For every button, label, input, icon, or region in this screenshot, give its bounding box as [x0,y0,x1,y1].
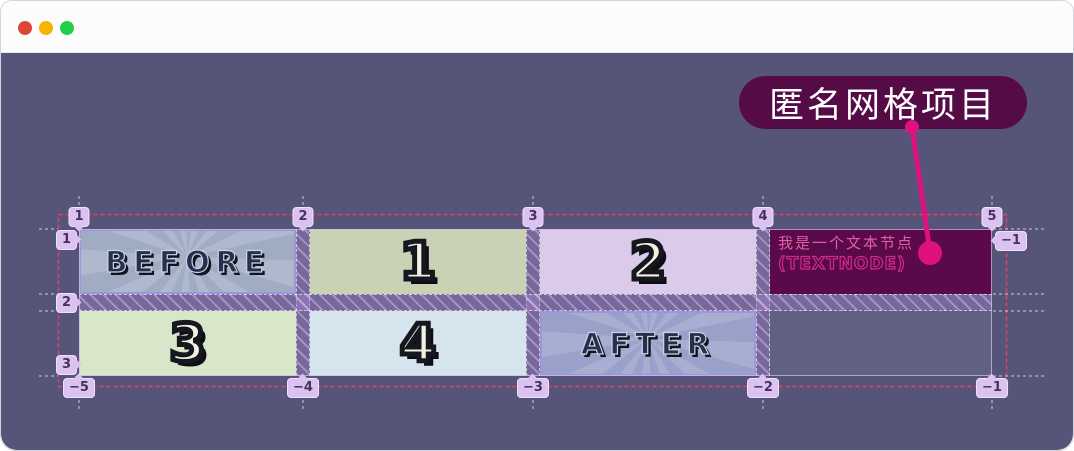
grid-cell-3: 3 [79,311,296,376]
grid-cell-2: 2 [540,229,756,294]
grid-line-marker-left-2: 2 [56,293,77,313]
grid-line-marker-bottom-neg4: −4 [287,378,319,398]
close-button[interactable] [18,21,32,35]
grid-cell-before: BEFORE [79,229,296,294]
browser-window: BEFORE 1 2 我是一个文本节点 (TEXTNODE) 3 4 AFTER… [0,0,1074,451]
grid-line-marker-top-4: 4 [752,207,773,227]
grid-line-marker-bottom-neg5: −5 [63,378,95,398]
textnode-line2: (TEXTNODE) [778,254,906,274]
grid-line-marker-bottom-neg1: −1 [976,378,1008,398]
grid-line-marker-bottom-neg2: −2 [747,378,779,398]
annotation-bubble: 匿名网格项目 [739,76,1027,129]
grid-line-marker-top-5: 5 [981,207,1002,227]
minimize-button[interactable] [39,21,53,35]
grid-cell-4: 4 [310,311,526,376]
grid-line-marker-left-3: 3 [56,355,77,375]
cell-4-label: 4 [400,314,436,374]
cell-1-label: 1 [400,232,436,292]
cell-2-label: 2 [630,232,666,292]
window-titlebar [1,1,1073,53]
grid-line-marker-top-1: 1 [68,207,89,227]
cell-3-label: 3 [169,314,205,374]
zoom-button[interactable] [60,21,74,35]
grid-cell-anonymous-textnode: 我是一个文本节点 (TEXTNODE) [770,229,992,294]
annotation-label: 匿名网格项目 [769,77,997,128]
grid-line-marker-left-1: 1 [56,230,77,250]
grid-cell-after: AFTER [540,311,756,376]
grid-line-marker-right-neg1: −1 [995,231,1027,251]
grid-cell-empty [770,311,992,376]
grid-line-marker-bottom-neg3: −3 [517,378,549,398]
cell-after-label: AFTER [581,327,715,361]
grid-cell-1: 1 [310,229,526,294]
textnode-line1: 我是一个文本节点 [778,233,914,254]
row-gap-hatch [79,294,992,311]
grid-line-marker-top-2: 2 [292,207,313,227]
grid-line-marker-top-3: 3 [522,207,543,227]
cell-before-label: BEFORE [105,245,270,279]
